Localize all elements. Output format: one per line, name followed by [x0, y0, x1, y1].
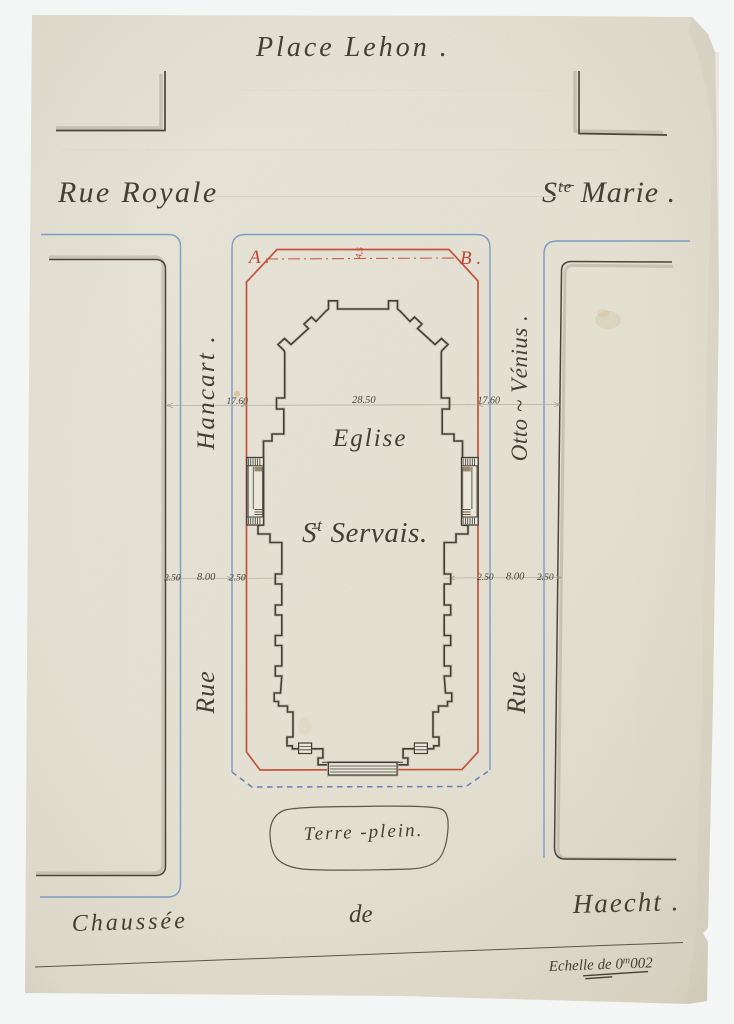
svg-text:Place Lehon .: Place Lehon .: [255, 32, 450, 63]
svg-text:Otto ~ Vénius .: Otto ~ Vénius .: [507, 315, 532, 461]
svg-text:Haecht .: Haecht .: [571, 886, 680, 919]
svg-text:2.50: 2.50: [537, 573, 554, 583]
svg-text:17.60: 17.60: [478, 396, 501, 407]
svg-text:Terre -plein.: Terre -plein.: [303, 820, 423, 845]
svg-text:2.50: 2.50: [229, 574, 246, 584]
svg-text:8.00: 8.00: [197, 572, 216, 583]
svg-text:8.00: 8.00: [506, 572, 525, 583]
svg-text:4,5: 4,5: [353, 246, 365, 259]
svg-text:B .: B .: [460, 248, 481, 269]
svg-text:Hancart .: Hancart .: [193, 334, 220, 451]
svg-text:Chaussée: Chaussée: [72, 908, 189, 937]
svg-text:de: de: [349, 901, 373, 928]
svg-text:A .: A .: [247, 247, 270, 268]
svg-text:2.50: 2.50: [477, 573, 494, 583]
svg-text:Rue Royale: Rue Royale: [57, 176, 218, 209]
svg-text:17.60: 17.60: [227, 397, 249, 407]
svg-text:28.50: 28.50: [352, 395, 376, 406]
svg-text:Rue: Rue: [191, 670, 220, 714]
svg-text:Eglise: Eglise: [332, 425, 408, 452]
svg-text:2.50: 2.50: [164, 574, 181, 584]
svg-text:Rue: Rue: [502, 670, 531, 714]
